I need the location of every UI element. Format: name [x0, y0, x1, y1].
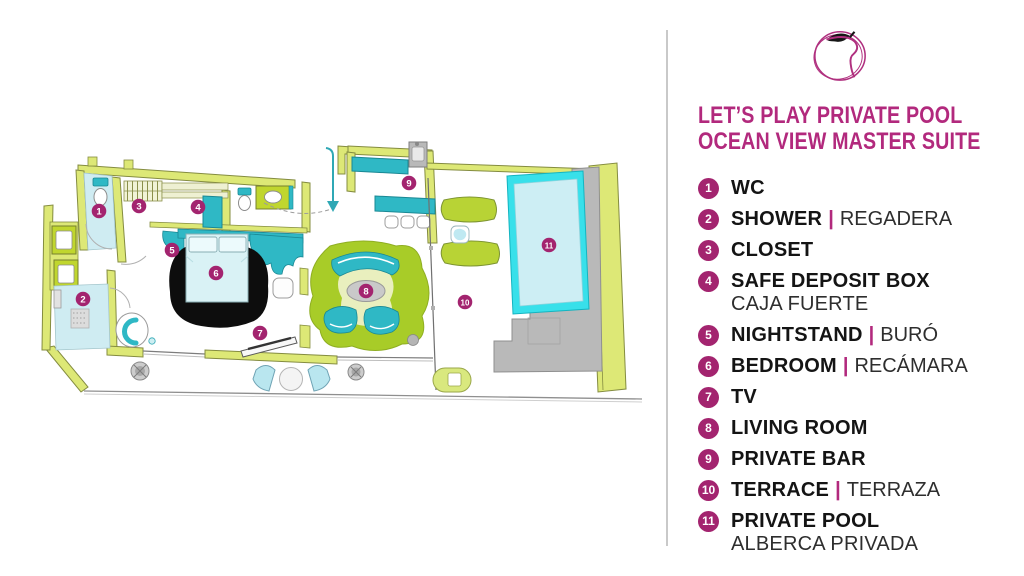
legend-badge: 5: [698, 325, 719, 346]
legend-label-en: WC: [731, 177, 765, 199]
legend-item-tv: 7 TV: [698, 387, 1020, 408]
pouf: [324, 306, 357, 333]
legend-badge: 7: [698, 387, 719, 408]
round-table: [280, 368, 303, 391]
plan-marker-number: 2: [80, 294, 85, 305]
separator: |: [863, 324, 881, 346]
legend-label-en: CLOSET: [731, 239, 813, 261]
title-line-2: OCEAN VIEW MASTER SUITE: [698, 129, 969, 155]
plan-marker-number: 1: [96, 206, 102, 217]
safe-deposit-box: [203, 196, 222, 228]
plan-marker-number: 8: [363, 286, 368, 297]
legend-badge: 2: [698, 209, 719, 230]
legend-item-closet: 3 CLOSET: [698, 240, 1020, 261]
arrowhead: [327, 201, 339, 212]
legend-badge: 6: [698, 356, 719, 377]
legend-label-es: BURÓ: [880, 324, 938, 346]
separator: |: [829, 479, 847, 501]
toilet-icon: [239, 196, 251, 211]
plan-marker-number: 9: [406, 178, 411, 189]
plan-marker-number: 7: [257, 328, 262, 339]
legend-label-en: BEDROOM: [731, 355, 837, 377]
legend-item-nightstand: 5 NIGHTSTAND|BURÓ: [698, 325, 1020, 346]
plan-marker-number: 3: [136, 201, 141, 212]
bar-stool: [385, 216, 398, 228]
legend-item-terrace: 10 TERRACE|TERRAZA: [698, 480, 1020, 501]
plan-marker-number: 4: [195, 202, 201, 213]
plan-marker-number: 11: [545, 241, 554, 250]
sink-icon: [56, 231, 72, 249]
legend-label-en: NIGHTSTAND: [731, 324, 863, 346]
legend-label-es: TERRAZA: [847, 479, 940, 501]
apple-curve: [826, 37, 857, 77]
legend-label-es: ALBERCA PRIVADA: [731, 534, 918, 555]
page-title: LET’S PLAY PRIVATE POOL OCEAN VIEW MASTE…: [698, 103, 969, 155]
legend-item-private-bar: 9 PRIVATE BAR: [698, 449, 1020, 470]
butterfly-chair: [308, 366, 330, 392]
bar-counter-top: [352, 157, 408, 174]
legend-label-en: SAFE DEPOSIT BOX: [731, 270, 930, 292]
pillow: [219, 237, 246, 252]
legend-badge: 3: [698, 240, 719, 261]
legend-label-en: PRIVATE POOL: [731, 510, 879, 532]
title-line-1: LET’S PLAY PRIVATE POOL: [698, 103, 969, 129]
legend-badge: 8: [698, 418, 719, 439]
toilet-tank: [93, 178, 108, 186]
info-panel: LET’S PLAY PRIVATE POOL OCEAN VIEW MASTE…: [680, 0, 1024, 576]
legend-label-en: TERRACE: [731, 479, 829, 501]
separator: |: [822, 208, 840, 230]
balcony-furniture: [131, 362, 471, 392]
plan-marker-number: 10: [461, 298, 470, 307]
pouf: [364, 306, 399, 334]
legend-label-es: REGADERA: [840, 208, 952, 230]
bar-stool: [401, 216, 414, 228]
legend-item-bedroom: 6 BEDROOM|RECÁMARA: [698, 356, 1020, 377]
bar-counter: [375, 196, 435, 214]
legend-badge: 4: [698, 271, 719, 292]
legend-label-es: CAJA FUERTE: [731, 294, 930, 315]
sink-icon: [58, 265, 74, 283]
separator: |: [837, 355, 855, 377]
plan-marker-number: 5: [169, 245, 175, 256]
apple-logo-icon: [811, 25, 869, 83]
stool: [273, 278, 293, 298]
lounge-chair: [441, 197, 496, 222]
floor-plan-drawing: 1234567891011: [0, 0, 660, 576]
sink-icon: [265, 191, 282, 203]
legend-badge: 1: [698, 178, 719, 199]
legend-label-en: PRIVATE BAR: [731, 448, 866, 470]
legend-label-en: LIVING ROOM: [731, 417, 868, 439]
small-object: [149, 338, 155, 344]
legend-item-safe: 4 SAFE DEPOSIT BOX CAJA FUERTE: [698, 271, 1020, 315]
pillow: [189, 237, 217, 252]
floor-drain: [348, 364, 364, 380]
shower-bench: [54, 290, 61, 308]
plan-marker-number: 6: [213, 268, 218, 279]
legend-item-shower: 2 SHOWER|REGADERA: [698, 209, 1020, 230]
vertical-divider: [666, 30, 668, 546]
private-pool: [494, 167, 602, 372]
legend-item-living-room: 8 LIVING ROOM: [698, 418, 1020, 439]
legend: 1 WC 2 SHOWER|REGADERA 3 CLOSET 4 SAFE D…: [698, 178, 1020, 565]
side-table: [408, 335, 419, 346]
floor-plan: 1234567891011: [0, 0, 660, 576]
butterfly-chair: [253, 366, 275, 392]
legend-item-wc: 1 WC: [698, 178, 1020, 199]
legend-item-private-pool: 11 PRIVATE POOL ALBERCA PRIVADA: [698, 511, 1020, 555]
legend-badge: 11: [698, 511, 719, 532]
legend-label-es: RECÁMARA: [854, 355, 967, 377]
legend-badge: 9: [698, 449, 719, 470]
legend-label-en: SHOWER: [731, 208, 822, 230]
bedroom: [121, 229, 303, 357]
floor-drain: [131, 362, 149, 380]
lounge-chair: [441, 241, 499, 266]
toilet-icon: [94, 189, 107, 206]
powder-room: [238, 186, 293, 211]
legend-badge: 10: [698, 480, 719, 501]
legend-label-en: TV: [731, 386, 757, 408]
terrace: [428, 178, 500, 390]
page: 1234567891011 LET’S PLAY PRIVATE POOL OC…: [0, 0, 1024, 576]
bar-stool: [417, 216, 430, 228]
